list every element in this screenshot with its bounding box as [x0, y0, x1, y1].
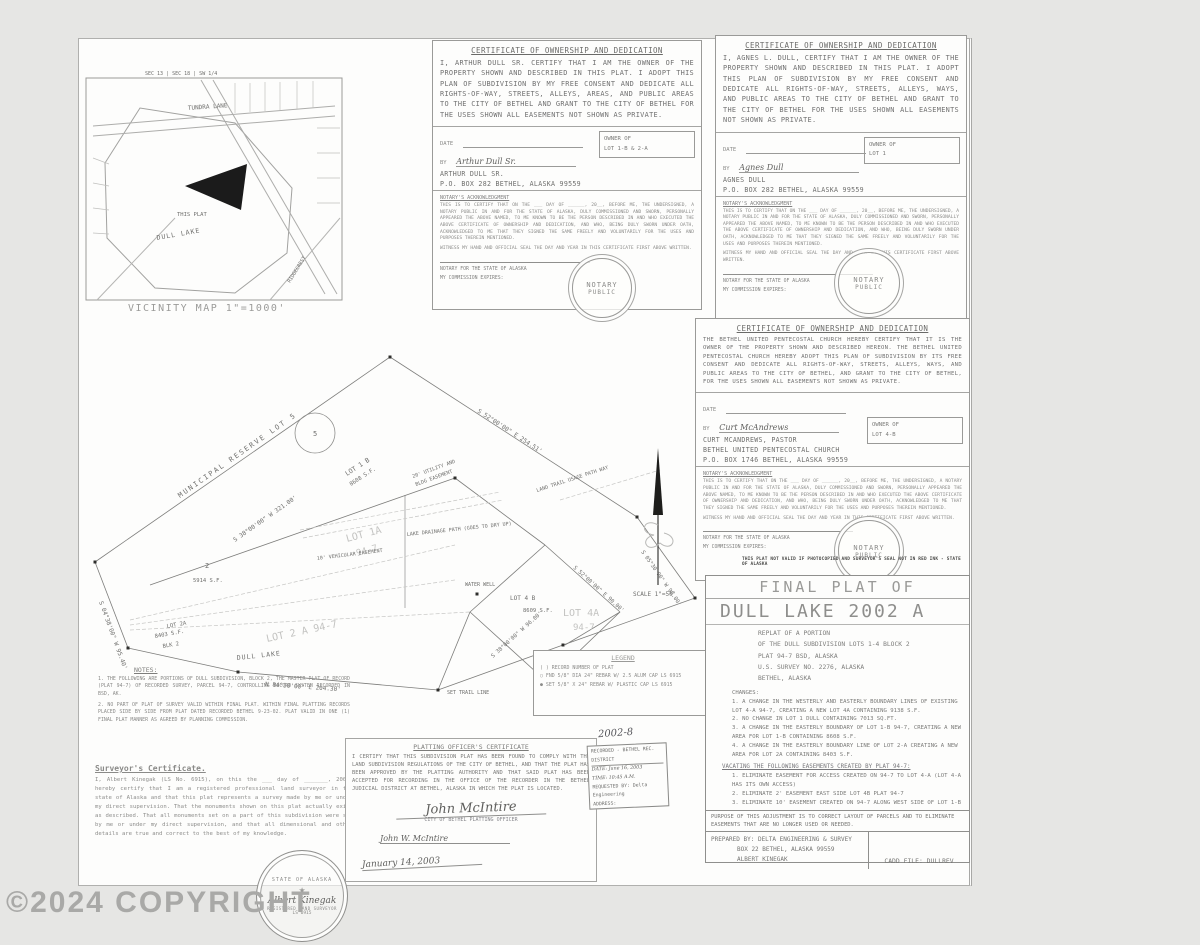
certificate-body: THE BETHEL UNITED PENTECOSTAL CHURCH HER… — [703, 336, 962, 386]
purpose-note: PURPOSE OF THIS ADJUSTMENT IS TO CORRECT… — [706, 810, 969, 831]
owner-of-lots: LOT 1-B & 2-A — [604, 145, 690, 155]
vacating-heading: VACATING THE FOLLOWING EASEMENTS CREATED… — [706, 762, 969, 771]
platting-officers-certificate: PLATTING OFFICER'S CERTIFICATE I CERTIFY… — [345, 738, 597, 882]
plat-title: DULL LAKE 2002 A — [706, 599, 969, 625]
set-trail-label: SET TRAIL LINE — [447, 690, 489, 696]
notary-state-line: NOTARY FOR THE STATE OF ALASKA — [703, 536, 962, 541]
subtitle-line: REPLAT OF A PORTION — [758, 628, 963, 639]
notary-body: THIS IS TO CERTIFY THAT ON THE ___ DAY O… — [440, 203, 694, 243]
lot4b-label: LOT 4 B — [510, 595, 536, 602]
certificate-title: CERTIFICATE OF OWNERSHIP AND DEDICATION — [703, 324, 962, 333]
copyright-watermark: ©2024 COPYRIGHT — [6, 886, 312, 920]
lot2-label: 2 — [205, 562, 209, 570]
owner-of-lots: LOT 4-B — [872, 431, 958, 441]
by-label: BY — [723, 166, 730, 172]
owner-address: P.O. BOX 282 BETHEL, ALASKA 99559 — [723, 186, 959, 194]
notes-heading: NOTES: — [134, 666, 350, 674]
title-block: FINAL PLAT OF DULL LAKE 2002 A REPLAT OF… — [705, 575, 970, 863]
certificate-body: I, AGNES L. DULL, CERTIFY THAT I AM THE … — [723, 53, 959, 126]
date-label: DATE — [703, 407, 716, 413]
vicinity-map: SEC 13 | SEC 18 | SW 1/4 TUNDRA LANE THI… — [85, 68, 345, 305]
subtitle-line: PLAT 94-7 BSD, ALASKA — [758, 651, 963, 662]
prepared-address: BOX 22 BETHEL, ALASKA 99559 — [711, 845, 863, 855]
ghost-lot2a-label: LOT 2 A 94-7 — [265, 619, 338, 645]
surveyors-certificate-body: I, Albert Kinegak (LS No. 6915), on this… — [95, 776, 353, 839]
road-label-br: RIDGECREST — [287, 255, 308, 284]
legend-item: ● SET 5/8" X 24" REBAR W/ PLASTIC CAP LS… — [540, 681, 706, 689]
lot4b-area: 8609 S.F. — [523, 608, 553, 614]
owner-of-label: OWNER OF — [869, 141, 955, 151]
vehicular-easement-label: 10' VEHICULAR EASEMENT — [317, 548, 383, 562]
municipal-reserve-label: MUNICIPAL RESERVE LOT 5 — [177, 411, 299, 500]
subtitle-line: OF THE DULL SUBDIVISION LOTS 1-4 BLOCK 2 — [758, 639, 963, 650]
prepared-surveyor: ALBERT KINEGAK — [711, 855, 863, 865]
notary-heading: NOTARY'S ACKNOWLEDGMENT — [703, 471, 962, 477]
by-label: BY — [440, 160, 447, 166]
platting-cert-heading: PLATTING OFFICER'S CERTIFICATE — [352, 743, 590, 751]
certificate-body: I, ARTHUR DULL SR. CERTIFY THAT I AM THE… — [440, 58, 694, 120]
road-label-top: TUNDRA LANE — [188, 102, 229, 112]
note-item: 1. THE FOLLOWING ARE PORTIONS OF DULL SU… — [98, 676, 350, 698]
owner-signature: Curt McAndrews — [719, 423, 839, 433]
owner-of-box: OWNER OF LOT 4-B — [867, 417, 963, 444]
change-item: 1. A CHANGE IN THE WESTERLY AND EASTERLY… — [732, 698, 961, 716]
notary-witness: WITNESS MY HAND AND OFFICIAL SEAL THE DA… — [440, 246, 694, 253]
surveyors-certificate: Surveyor's Certificate. I, Albert Kinega… — [95, 764, 353, 839]
vacating-item: 1. ELIMINATE EASEMENT FOR ACCESS CREATED… — [732, 772, 961, 790]
bearing-2: S 52°00'00" E 254.51' — [476, 408, 543, 455]
subtitle-line: BETHEL, ALASKA — [758, 673, 963, 684]
lake-outline — [105, 108, 292, 293]
owner-of-label: OWNER OF — [604, 135, 690, 145]
owner-address: P.O. BOX 282 BETHEL, ALASKA 99559 — [440, 180, 694, 188]
recording-stamp: RECORDED - BETHEL REC. DISTRICT DATE: Ju… — [587, 742, 670, 809]
notary-heading: NOTARY'S ACKNOWLEDGMENT — [440, 195, 694, 201]
platting-cert-body: I CERTIFY THAT THIS SUBDIVISION PLAT HAS… — [352, 753, 590, 794]
owner-of-label: OWNER OF — [872, 421, 958, 431]
date-line — [746, 144, 866, 154]
drainage-path-label: LAKE DRAINAGE PATH (GOES TO DRY UP) — [407, 521, 512, 538]
dull-lake-label: DULL LAKE — [236, 649, 281, 662]
lot2a-label: LOT 2A — [166, 620, 187, 629]
change-item: 4. A CHANGE IN THE EASTERLY BOUNDARY LIN… — [732, 742, 961, 760]
ghost-lot1a-label: LOT 1A — [345, 525, 383, 545]
notary-seal-2: NOTARY PUBLIC — [838, 252, 900, 314]
water-well-label: WATER WELL — [465, 582, 495, 588]
owner-name: AGNES DULL — [723, 176, 959, 184]
legend-item: ○ FND 5/8" DIA 24" REBAR W/ 2.5 ALUM CAP… — [540, 672, 706, 680]
notary-state-line: NOTARY FOR THE STATE OF ALASKA — [440, 267, 694, 272]
section-note: SEC 13 | SEC 18 | SW 1/4 — [145, 71, 217, 77]
date-line — [463, 138, 583, 148]
vacating-item: 3. ELIMINATE 10' EASEMENT CREATED ON 94-… — [732, 799, 961, 808]
notary-heading: NOTARY'S ACKNOWLEDGMENT — [723, 201, 959, 207]
final-plat-of: FINAL PLAT OF — [706, 576, 969, 599]
ghost-lot4a-plat: 94-7 — [573, 623, 595, 633]
not-valid-note: THIS PLAT NOT VALID IF PHOTOCOPIED AND S… — [742, 557, 968, 567]
owner-of-box: OWNER OF LOT 1 — [864, 137, 960, 164]
owner-signature: Agnes Dull — [739, 163, 859, 173]
circle-5-label: 5 — [313, 430, 317, 438]
prepared-by: PREPARED BY: DELTA ENGINEERING & SURVEY — [711, 835, 863, 845]
change-item: 3. A CHANGE IN THE EASTERLY BOUNDARY OF … — [732, 724, 961, 742]
lake-label: DULL LAKE — [156, 226, 201, 242]
owner-address: P.O. BOX 1746 BETHEL, ALASKA 99559 — [703, 456, 962, 464]
changes-heading: CHANGES: — [732, 689, 961, 698]
cadd-file: CADD FILE: DULLREV — [868, 832, 969, 869]
certificate-title: CERTIFICATE OF OWNERSHIP AND DEDICATION — [440, 46, 694, 55]
platting-officer-printed-name: John W. McIntire — [380, 834, 510, 844]
owner-name: ARTHUR DULL SR. — [440, 170, 694, 178]
owner-signature: Arthur Dull Sr. — [456, 157, 576, 167]
ghost-lot4a-label: LOT 4A — [563, 608, 599, 619]
notary-witness: WITNESS MY HAND AND OFFICIAL SEAL THE DA… — [723, 251, 959, 264]
lot2a-area: 8403 S.F. — [154, 629, 184, 640]
owner-of-box: OWNER OF LOT 1-B & 2-A — [599, 131, 695, 158]
lot2a-blk: BLK 2 — [162, 641, 179, 650]
owner-org: BETHEL UNITED PENTECOSTAL CHURCH — [703, 446, 962, 454]
date-label: DATE — [440, 141, 453, 147]
notary-witness: WITNESS MY HAND AND OFFICIAL SEAL THE DA… — [703, 516, 962, 523]
this-plat-label: THIS PLAT — [177, 212, 207, 218]
certificate-title: CERTIFICATE OF OWNERSHIP AND DEDICATION — [723, 41, 959, 50]
date-label: DATE — [723, 147, 736, 153]
owner-of-lots: LOT 1 — [869, 150, 955, 160]
notes-block: NOTES: 1. THE FOLLOWING ARE PORTIONS OF … — [98, 666, 350, 728]
certificate-ownership-1: CERTIFICATE OF OWNERSHIP AND DEDICATION … — [432, 40, 702, 310]
legend-item: ( ) RECORD NUMBER OF PLAT — [540, 664, 706, 672]
vacating-item: 2. ELIMINATE 2' EASEMENT EAST SIDE LOT 4… — [732, 790, 961, 799]
certificate-ownership-church: CERTIFICATE OF OWNERSHIP AND DEDICATION … — [695, 318, 970, 581]
vicinity-caption: VICINITY MAP 1"=1000' — [128, 303, 286, 314]
bearing-3: S 04°38'00" W 95.40' — [97, 600, 128, 670]
bearing-5: S 52°00'00" E 90.00' — [572, 565, 625, 614]
platting-officer-title: CITY OF BETHEL PLATTING OFFICER — [352, 817, 590, 823]
platting-date: January 14, 2003 — [362, 853, 482, 870]
subtitle-line: U.S. SURVEY NO. 2276, ALASKA — [758, 662, 963, 673]
notary-body: THIS IS TO CERTIFY THAT ON THE ___ DAY O… — [703, 479, 962, 512]
date-line — [726, 404, 846, 414]
this-plat-parcel — [185, 164, 247, 210]
notary-seal-3: NOTARY PUBLIC — [838, 520, 900, 582]
notary-seal-1: NOTARY PUBLIC — [572, 258, 632, 318]
trail-usage-label: LAND TRAIL USAGE PATH WAY — [536, 465, 609, 494]
note-item: 2. NO PART OF PLAT OF SURVEY VALID WITHI… — [98, 702, 350, 724]
by-label: BY — [703, 426, 710, 432]
legend-heading: LEGEND — [540, 654, 706, 662]
lot2-area: 5914 S.F. — [193, 578, 223, 584]
platting-officer-signature: John McIntire — [396, 798, 546, 819]
change-item: 2. NO CHANGE IN LOT 1 DULL CONTAINING 70… — [732, 715, 961, 724]
legend-box: LEGEND ( ) RECORD NUMBER OF PLAT ○ FND 5… — [533, 650, 713, 716]
surveyors-certificate-heading: Surveyor's Certificate. — [95, 764, 353, 773]
notary-body: THIS IS TO CERTIFY THAT ON THE ___ DAY O… — [723, 209, 959, 249]
bearing-7: S 05°30'00" W 98.00' — [639, 550, 682, 608]
